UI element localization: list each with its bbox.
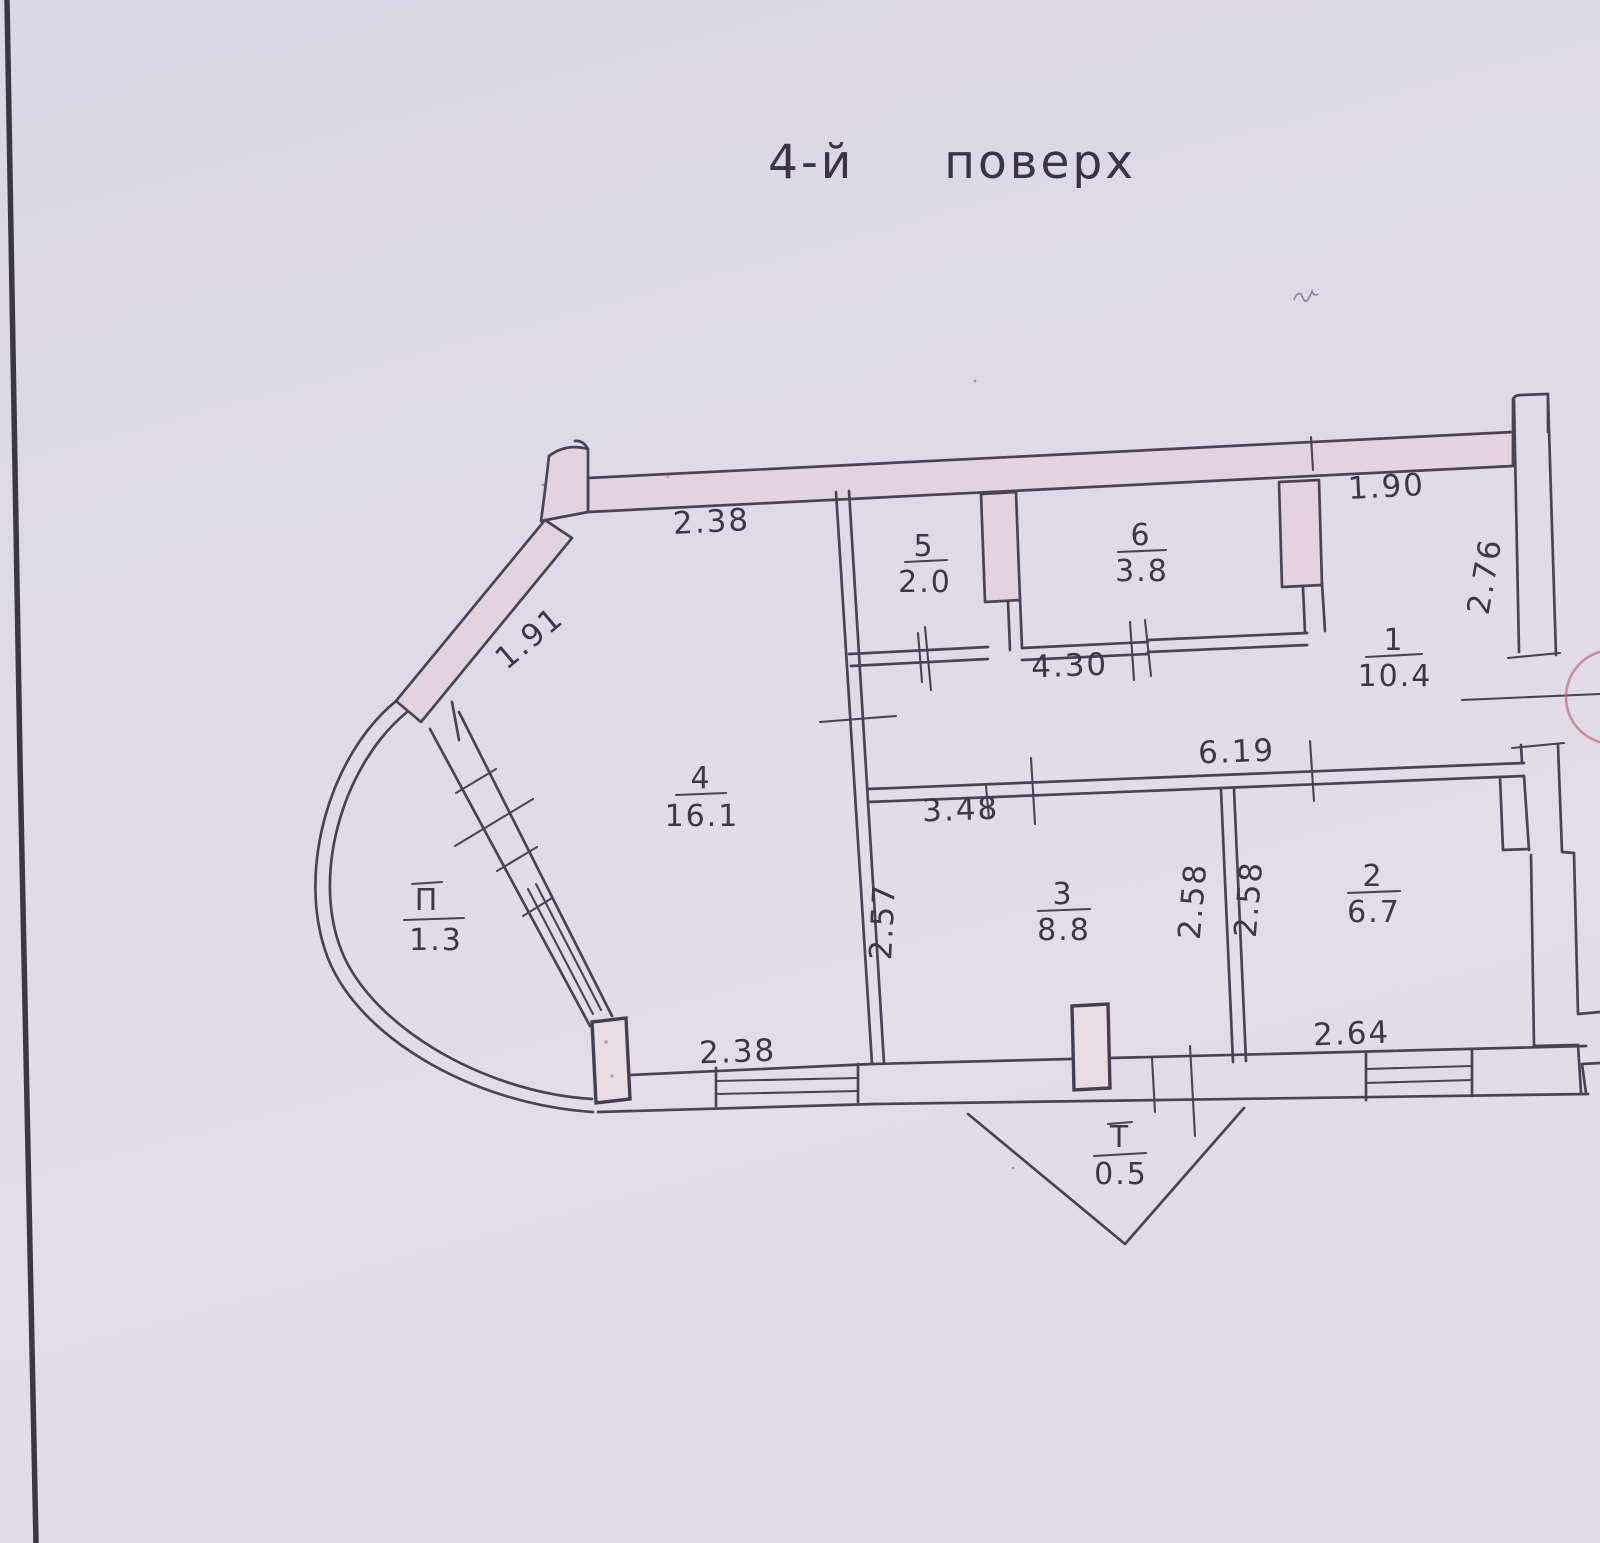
room2-window-glazing [1366,1066,1472,1069]
room-2-number: 2 [1362,859,1383,894]
top-right-pier [1513,394,1548,432]
room-4-fraction-bar [676,793,726,795]
room-1-area: 10.4 [1358,659,1433,694]
dim-room2-left: 2.58 [1228,859,1271,939]
diagonal-wall-lower-sw [430,729,590,1026]
entrance-stamp [1566,650,1600,744]
scan-speckle [542,484,545,487]
red-stamp-circle [1566,650,1600,744]
room4-window-glazing [716,1091,858,1094]
room-3-number: 3 [1052,877,1073,912]
bottom-wall-east-top [872,1046,1586,1064]
diagonal-wall-jog [452,702,459,740]
hall-wall-tick [1031,758,1035,824]
closet-dim-tick [1130,622,1134,680]
page-artifacts [7,0,1318,1543]
balcony-arc-outer [315,701,593,1112]
dim-room3-left: 2.57 [863,882,903,961]
room-5-fraction-bar [905,560,947,562]
bottom-wall-east-bottom [875,1094,1588,1104]
top-left-pier [541,447,588,521]
diagonal-window-glazing [528,889,593,1014]
room-2-area: 6.7 [1347,895,1401,930]
entry-door-jamb-tick [1508,653,1560,658]
dim-hall-wall: 6.19 [1198,733,1276,772]
room-3-fraction-bar [1038,909,1090,911]
room-6-number: 6 [1130,518,1151,553]
balcony-p-fraction-bar [404,918,464,920]
room-1-number: 1 [1383,623,1404,658]
diagonal-window-tick [497,847,537,871]
balcony-t-fraction-bar [1094,1153,1146,1156]
room6-right-pier-step [1303,583,1325,633]
balcony-door-tick [1190,1046,1195,1136]
room-5-number: 5 [913,529,934,564]
diagonal-window-glazing [536,884,601,1010]
pillar-speckle [604,1040,607,1043]
dim-room3-top: 3.48 [922,791,1000,830]
room-5-area: 2.0 [898,565,952,600]
room6-door-tick [1145,620,1151,676]
room5-door-tick [925,627,931,690]
right-wall-outer [1548,398,1600,1093]
room6-south-wall [1148,633,1307,652]
bottom-wall-west-bottom [598,1104,875,1112]
room5-room6-pier-step [1008,598,1022,650]
room-4-number: 4 [690,761,711,796]
diagonal-wall-lower-ne [459,712,612,1016]
dim-entry-width: 1.90 [1347,467,1426,507]
room6-right-pier [1279,480,1322,587]
floor-plan-drawing: 4-й поверх [0,0,1600,1543]
room4-door-tick [820,716,896,722]
room-4-area: 16.1 [665,799,740,834]
page-left-edge-line [7,0,36,1543]
diagonal-window-tick [456,769,496,793]
room-2-fraction-bar [1348,891,1400,893]
dim-entry-height: 2.76 [1461,535,1510,617]
room-1-fraction-bar [1366,654,1422,657]
dim-room3-right: 2.58 [1172,861,1215,941]
balcony-arc-inner [330,712,592,1099]
room2-window-glazing [1366,1080,1472,1083]
diagonal-window-long-tick [455,799,533,846]
vent-shaft [1072,1004,1110,1090]
room-6-fraction-bar [1118,550,1166,552]
door-pillar [592,1018,630,1103]
balcony-p-area: 1.3 [409,923,463,958]
room5-room6-pier [981,492,1020,602]
room-3-area: 8.8 [1037,913,1091,948]
dim-room2-window: 2.64 [1313,1015,1391,1054]
scan-speckle [974,380,977,383]
room4-window-glazing [716,1078,858,1081]
scan-speckle [1012,1167,1015,1170]
pen-scribble-mark [1294,291,1318,301]
scanned-floor-plan-page: 4-й поверх [0,0,1600,1543]
closet-dim-tick [918,633,922,682]
room-6-area: 3.8 [1115,554,1169,589]
dim-room4-window: 2.38 [699,1033,777,1072]
entry-dim-line [1462,694,1600,700]
balcony-door-tick [1152,1058,1155,1112]
dim-top-wall: 2.38 [672,502,751,542]
balcony-t-number: Т [1109,1120,1130,1155]
balcony-t-area: 0.5 [1094,1157,1148,1192]
balcony-p-number: П [415,883,440,918]
page-title: 4-й поверх [768,135,1136,190]
dim-closet-wall: 4.30 [1031,647,1109,686]
pillar-speckle [611,1075,614,1078]
